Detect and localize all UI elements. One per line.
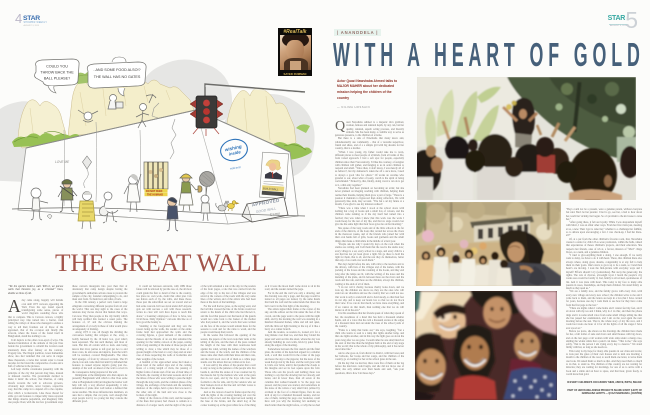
svg-text:BALL PLEASE?: BALL PLEASE? [44, 77, 70, 81]
svg-text:COULD YOU: COULD YOU [46, 65, 68, 69]
svg-text:LOVE ME: LOVE ME [55, 160, 70, 164]
svg-text:..AND SOME FOOD ALSO!?: ..AND SOME FOOD ALSO!? [93, 68, 140, 72]
svg-text:THROW BACK THE: THROW BACK THE [40, 71, 74, 75]
svg-text:THE HUMANS: THE HUMANS [147, 194, 163, 197]
svg-text:DO NOT FEED: DO NOT FEED [146, 190, 163, 193]
svg-text:THE WALL HAS NO GATES: THE WALL HAS NO GATES [94, 75, 141, 79]
